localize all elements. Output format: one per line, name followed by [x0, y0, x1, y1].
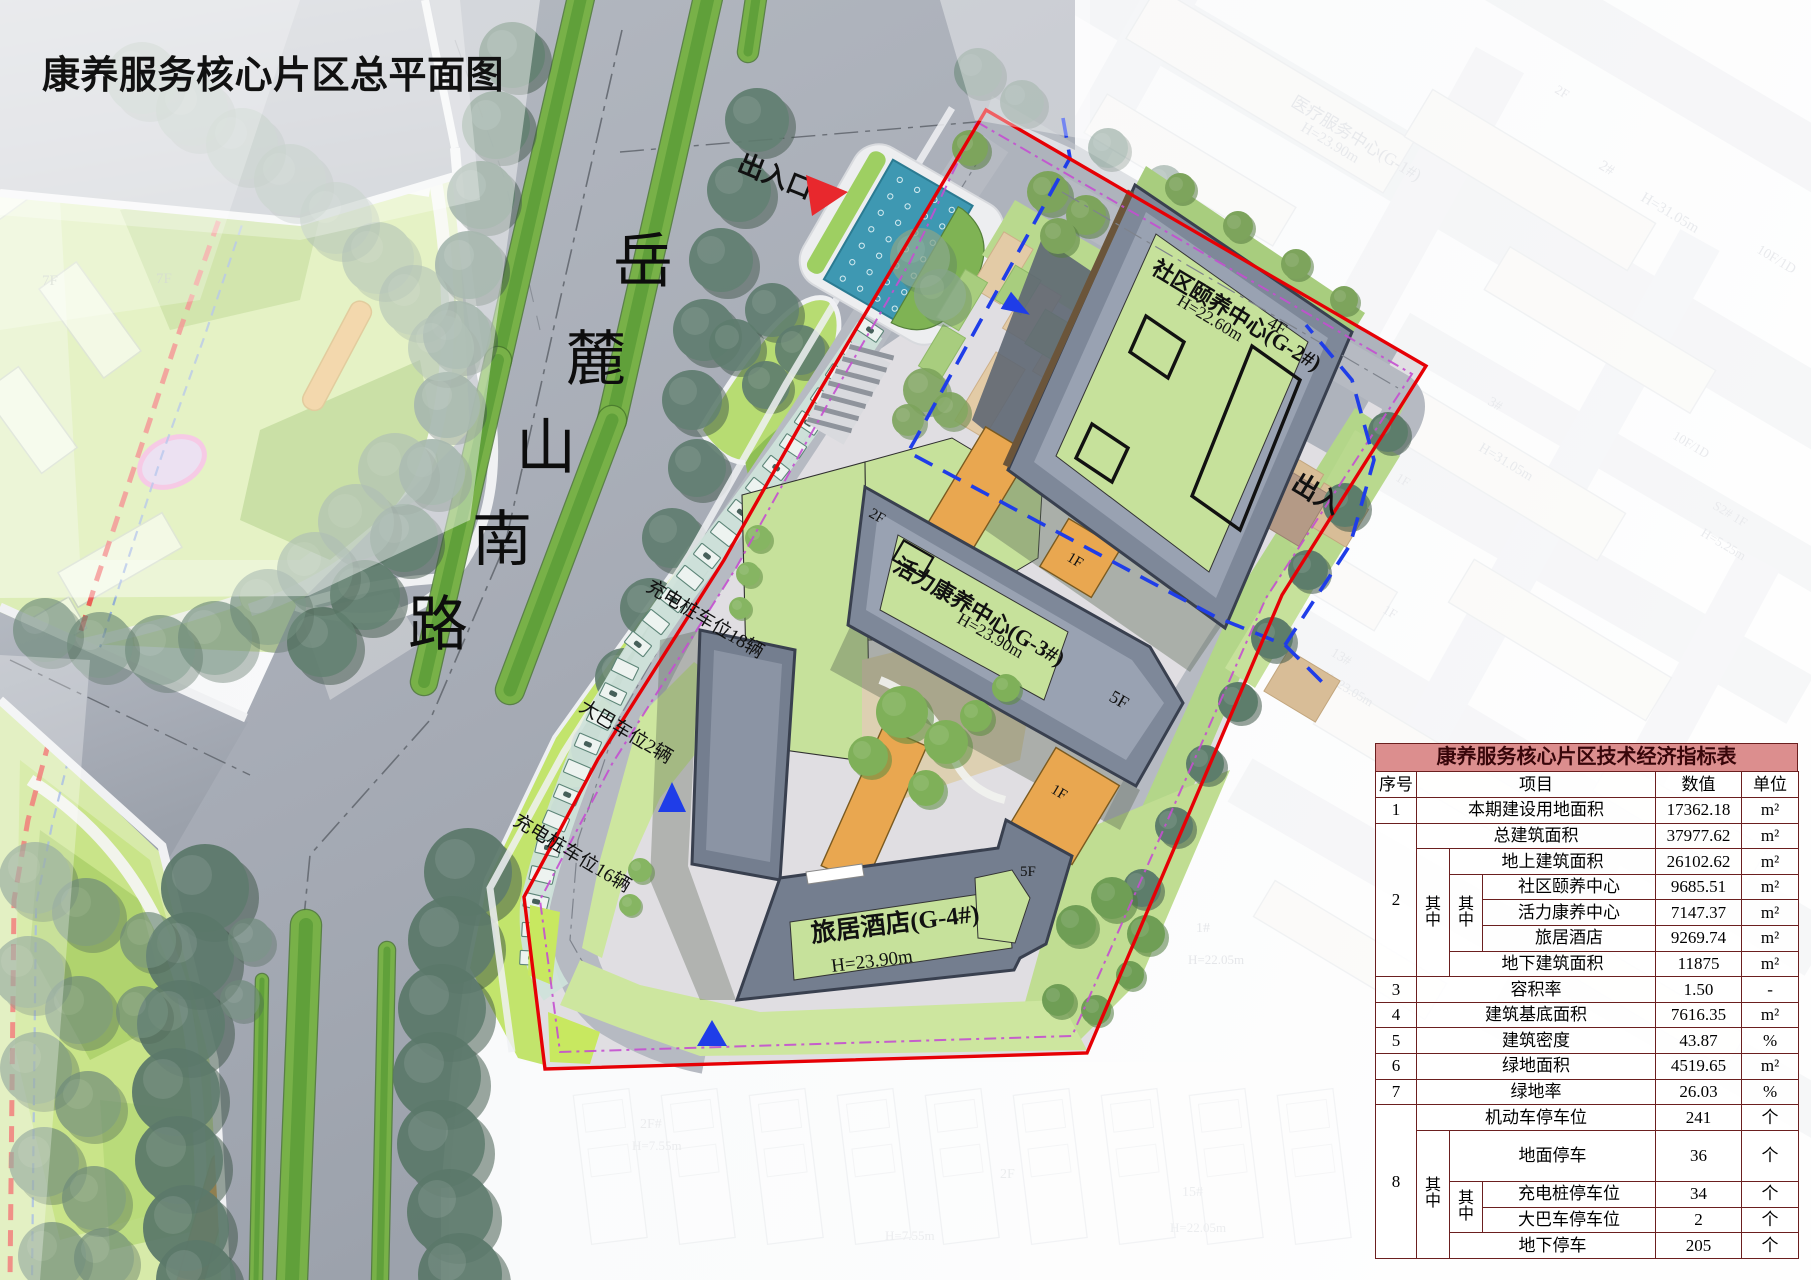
svg-text:麓: 麓 — [566, 327, 626, 393]
svg-text:1#: 1# — [1196, 921, 1210, 936]
svg-text:康养服务核心片区总平面图: 康养服务核心片区总平面图 — [42, 54, 504, 97]
svg-text:5F: 5F — [1020, 864, 1036, 880]
svg-text:H=22.05m: H=22.05m — [1188, 952, 1244, 967]
svg-text:岳: 岳 — [613, 229, 673, 295]
svg-text:路: 路 — [408, 592, 468, 658]
svg-text:山: 山 — [516, 415, 576, 481]
svg-text:南: 南 — [472, 507, 532, 573]
